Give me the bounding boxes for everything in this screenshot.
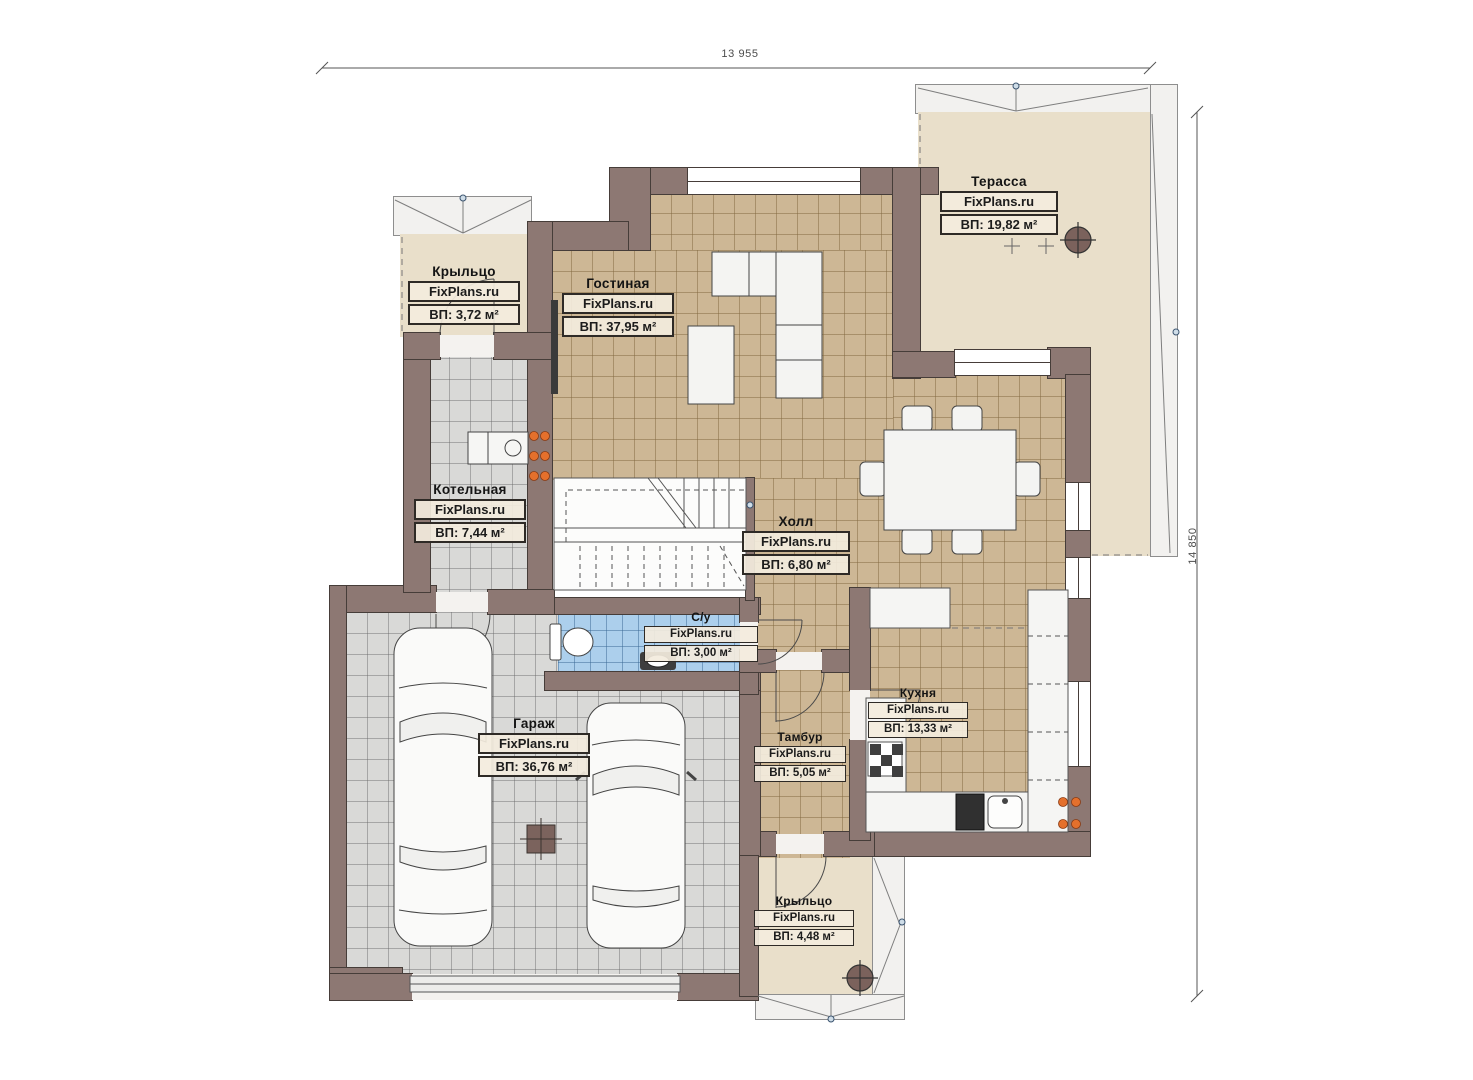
floor-boiler	[428, 337, 528, 592]
door-opening	[776, 834, 824, 854]
window-living-north	[688, 168, 860, 194]
door-opening	[440, 335, 494, 357]
room-area: ВП: 19,82 м²	[940, 214, 1058, 235]
room-label-living: Гостиная FixPlans.ru ВП: 37,95 м²	[562, 276, 674, 337]
door-opening	[850, 690, 870, 740]
wall-kitchen-west	[850, 588, 870, 690]
room-area: ВП: 7,44 м²	[414, 522, 526, 543]
room-name: Кухня	[868, 686, 968, 700]
roof-porch-top	[393, 196, 532, 236]
room-label-porch-top: Крыльцо FixPlans.ru ВП: 3,72 м²	[408, 264, 520, 325]
stairs	[554, 478, 746, 590]
garage-door-opening	[412, 974, 678, 1000]
watermark: FixPlans.ru	[742, 531, 850, 552]
watermark: FixPlans.ru	[414, 499, 526, 520]
room-name: Гараж	[478, 716, 590, 731]
wall-segment	[494, 333, 552, 359]
window-hall-east	[1066, 483, 1090, 530]
room-name: Котельная	[414, 482, 526, 497]
room-label-hall: Холл FixPlans.ru ВП: 6,80 м²	[742, 514, 850, 575]
wall-east	[1066, 530, 1090, 558]
room-area: ВП: 36,76 м²	[478, 756, 590, 777]
room-name: Крыльцо	[754, 894, 854, 908]
window-hall-terrace	[955, 350, 1050, 375]
room-label-boiler: Котельная FixPlans.ru ВП: 7,44 м²	[414, 482, 526, 543]
roof-terrace-top	[915, 84, 1178, 114]
wall-segment	[893, 352, 955, 377]
room-area: ВП: 13,33 м²	[868, 721, 968, 738]
room-area: ВП: 3,00 м²	[644, 645, 758, 662]
wall-bathroom-south	[545, 672, 760, 690]
wall-segment	[404, 333, 440, 359]
room-label-garage: Гараж FixPlans.ru ВП: 36,76 м²	[478, 716, 590, 777]
floor-terrace-strip	[1090, 354, 1150, 556]
floor-living-top	[650, 192, 893, 254]
window-kitchen-east-2	[1066, 682, 1090, 766]
wall-segment	[488, 590, 554, 614]
wall-east	[1066, 598, 1090, 682]
dimension-top-label: 13 955	[690, 48, 790, 60]
door-opening	[436, 592, 488, 612]
room-area: ВП: 3,72 м²	[408, 304, 520, 325]
room-area: ВП: 6,80 м²	[742, 554, 850, 575]
room-label-kitchen: Кухня FixPlans.ru ВП: 13,33 м²	[868, 686, 968, 738]
wall-garage-west	[330, 586, 346, 1000]
room-name: Холл	[742, 514, 850, 529]
room-area: ВП: 37,95 м²	[562, 316, 674, 337]
wall-kitchen-south	[858, 832, 1090, 856]
window-kitchen-east-1	[1066, 558, 1090, 598]
room-name: Крыльцо	[408, 264, 520, 279]
watermark: FixPlans.ru	[940, 191, 1058, 212]
floor-hall-east	[893, 375, 1066, 483]
room-label-vestibule: Тамбур FixPlans.ru ВП: 5,05 м²	[754, 730, 846, 782]
wall-garage-south	[330, 974, 412, 1000]
room-area: ВП: 4,48 м²	[754, 929, 854, 946]
wall-kitchen-west	[850, 740, 870, 840]
room-area: ВП: 5,05 м²	[754, 765, 846, 782]
watermark: FixPlans.ru	[644, 626, 758, 643]
wall-east	[1066, 375, 1090, 483]
door-opening	[776, 652, 822, 670]
room-label-porch-bottom: Крыльцо FixPlans.ru ВП: 4,48 м²	[754, 894, 854, 946]
dimension-right-label: 14 850	[1187, 491, 1199, 601]
watermark: FixPlans.ru	[562, 293, 674, 314]
room-label-terrace: Терасса FixPlans.ru ВП: 19,82 м²	[940, 174, 1058, 235]
room-name: Тамбур	[754, 730, 846, 744]
floor-plan: Терасса FixPlans.ru ВП: 19,82 м² Крыльцо…	[0, 0, 1473, 1080]
roof-porch-bottom	[755, 994, 905, 1020]
room-name: С/у	[644, 610, 758, 624]
watermark: FixPlans.ru	[478, 733, 590, 754]
watermark: FixPlans.ru	[408, 281, 520, 302]
watermark: FixPlans.ru	[754, 746, 846, 763]
watermark: FixPlans.ru	[868, 702, 968, 719]
room-name: Гостиная	[562, 276, 674, 291]
watermark: FixPlans.ru	[754, 910, 854, 927]
wall-corner-ne	[1048, 348, 1090, 378]
room-label-bathroom: С/у FixPlans.ru ВП: 3,00 м²	[644, 610, 758, 662]
room-name: Терасса	[940, 174, 1058, 189]
roof-terrace-right	[1150, 84, 1178, 557]
wall-west	[528, 222, 552, 592]
wall-living-east	[893, 168, 920, 378]
wall-boiler-west	[404, 337, 430, 592]
